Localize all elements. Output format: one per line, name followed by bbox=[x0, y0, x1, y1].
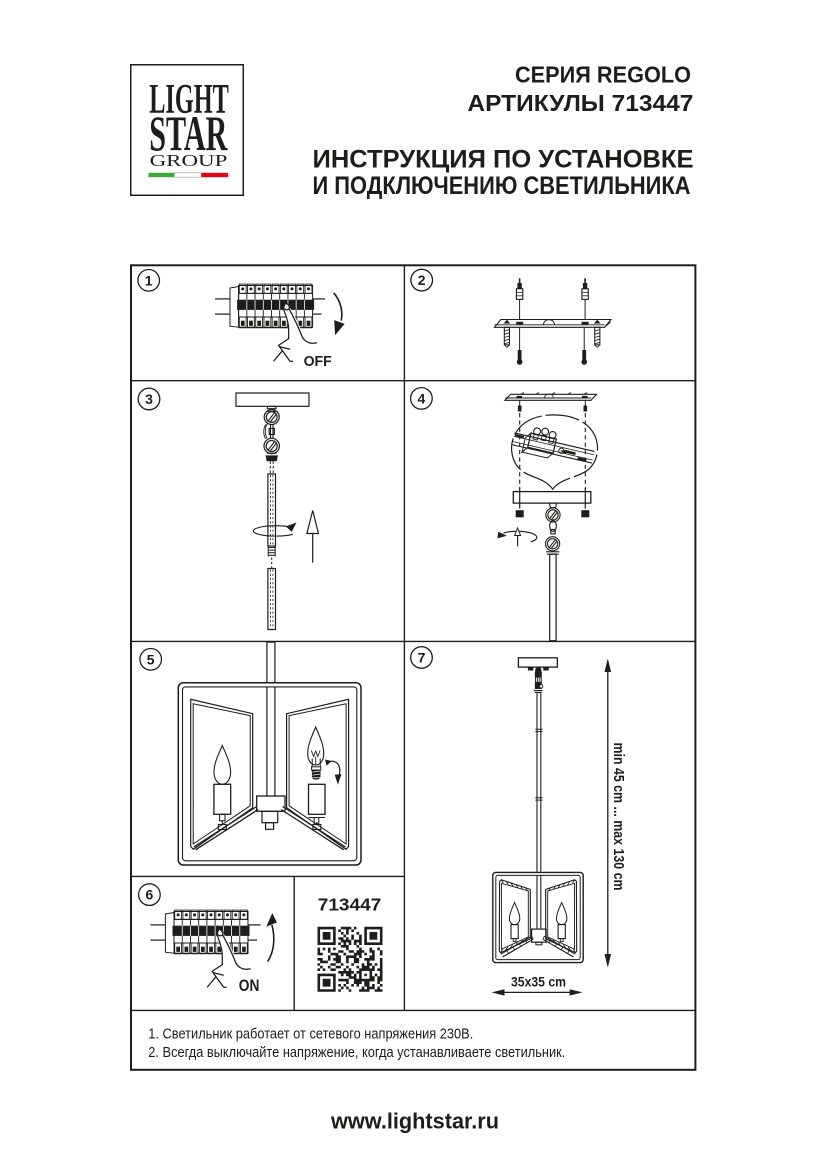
svg-text:АРТИКУЛЫ 713447: АРТИКУЛЫ 713447 bbox=[467, 90, 693, 116]
svg-text:СЕРИЯ REGOLO: СЕРИЯ REGOLO bbox=[515, 62, 691, 88]
svg-text:min 45 cm ... max 130 cm: min 45 cm ... max 130 cm bbox=[610, 743, 626, 891]
svg-text:www.lightstar.ru: www.lightstar.ru bbox=[330, 1108, 499, 1133]
svg-text:ИНСТРУКЦИЯ ПО УСТАНОВКЕ: ИНСТРУКЦИЯ ПО УСТАНОВКЕ bbox=[313, 146, 694, 174]
svg-text:713447: 713447 bbox=[318, 895, 382, 915]
svg-text:5: 5 bbox=[147, 651, 155, 667]
svg-text:1. Светильник работает от сете: 1. Светильник работает от сетевого напря… bbox=[148, 1026, 473, 1042]
svg-text:ON: ON bbox=[239, 977, 260, 995]
svg-text:2. Всегда выключайте напряжени: 2. Всегда выключайте напряжение, когда у… bbox=[148, 1045, 565, 1061]
svg-text:7: 7 bbox=[418, 650, 426, 666]
svg-text:3: 3 bbox=[145, 391, 153, 407]
svg-text:OFF: OFF bbox=[304, 354, 332, 370]
svg-text:1: 1 bbox=[145, 272, 153, 288]
svg-text:4: 4 bbox=[418, 390, 426, 406]
svg-text:2: 2 bbox=[418, 272, 426, 288]
svg-text:И ПОДКЛЮЧЕНИЮ СВЕТИЛЬНИКА: И ПОДКЛЮЧЕНИЮ СВЕТИЛЬНИКА bbox=[313, 172, 691, 200]
svg-text:GROUP: GROUP bbox=[150, 151, 228, 170]
svg-text:6: 6 bbox=[146, 887, 154, 903]
svg-text:35x35 cm: 35x35 cm bbox=[511, 975, 566, 990]
